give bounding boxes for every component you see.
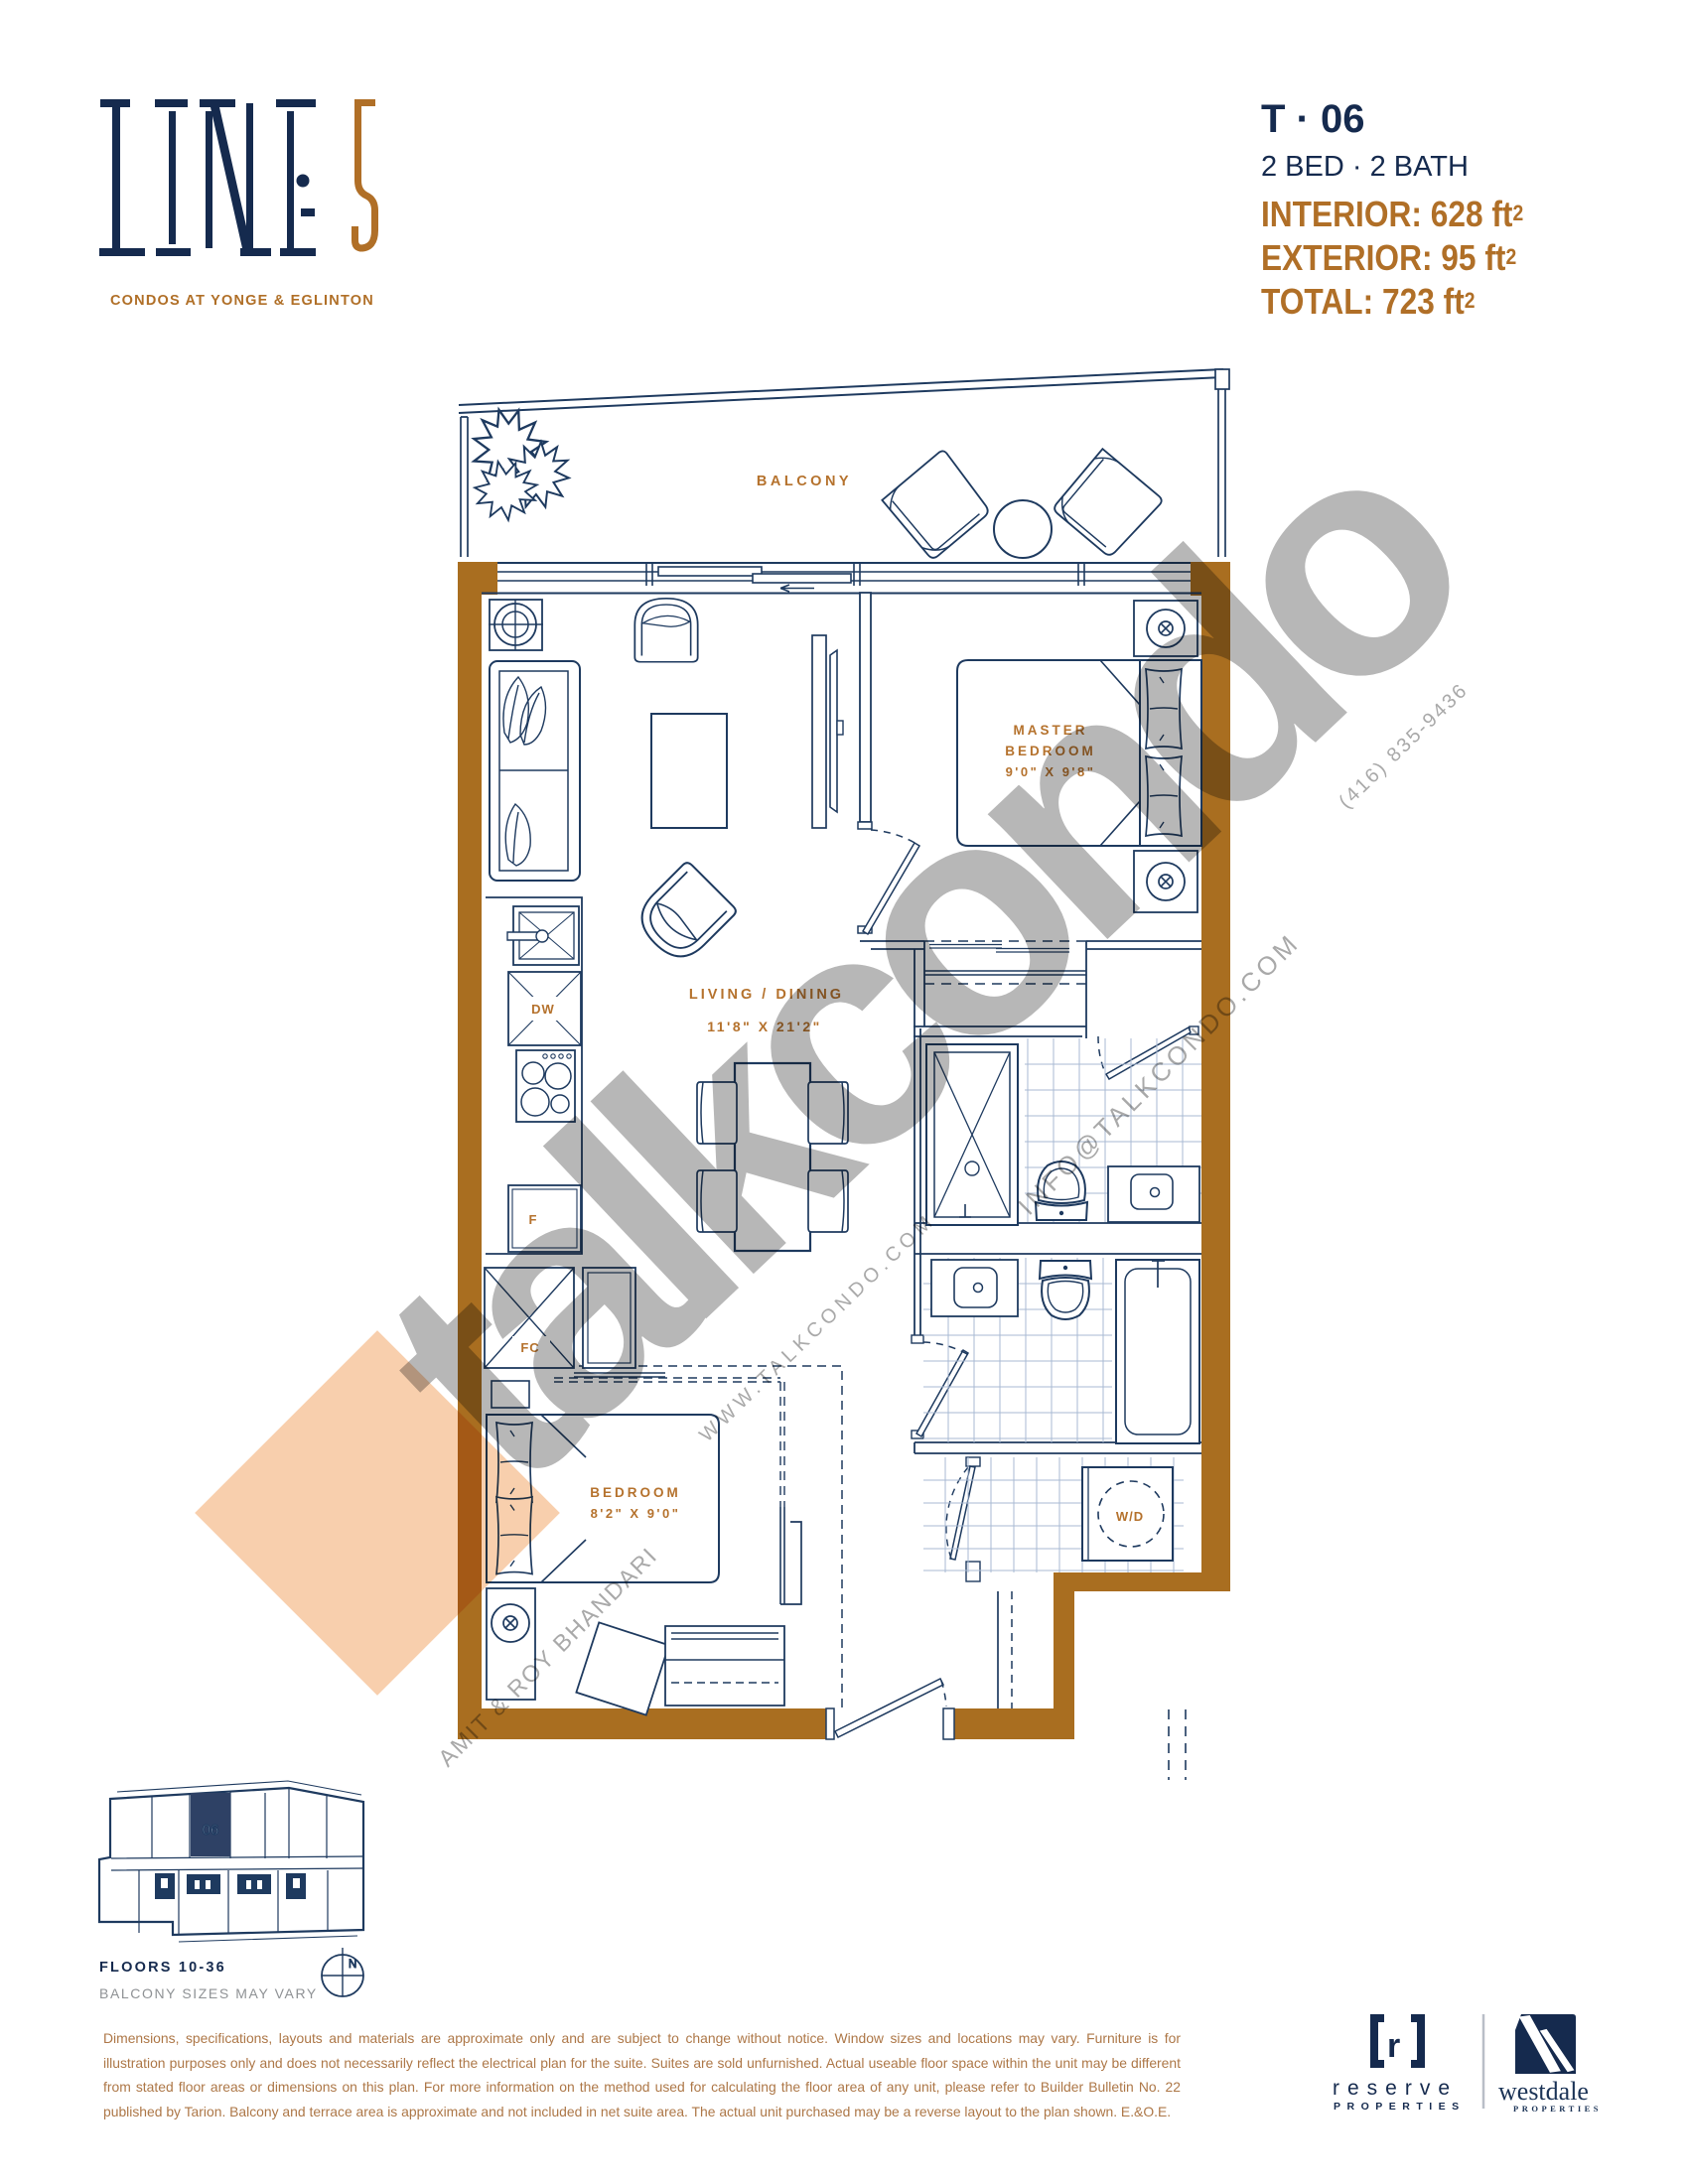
svg-text:talkcondo: talkcondo [312, 369, 1530, 1550]
